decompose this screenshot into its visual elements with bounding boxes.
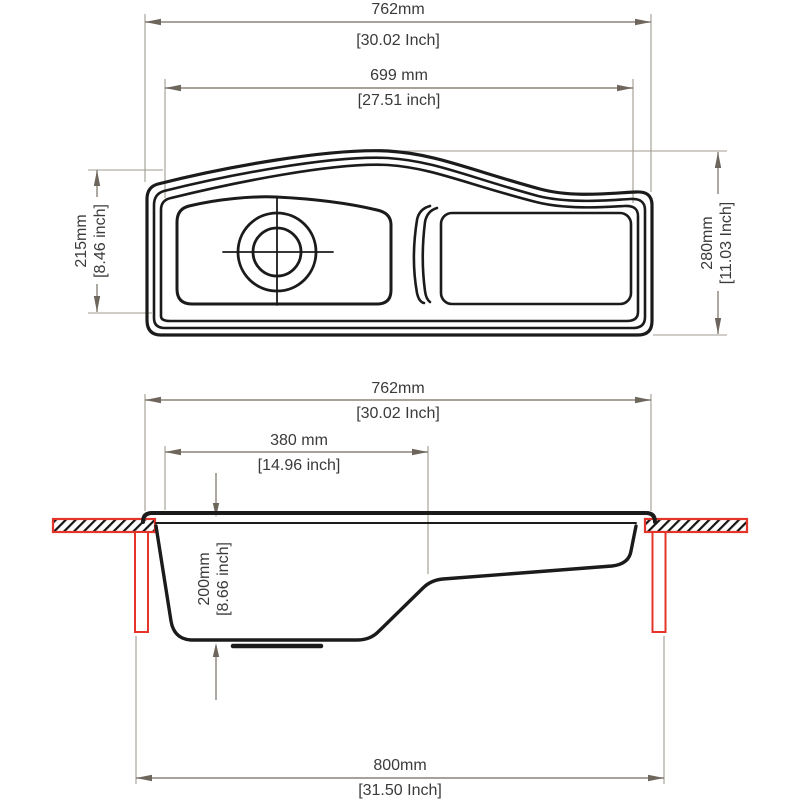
dim-top-width-mm: 762mm: [371, 1, 424, 19]
bowl-divider-2: [423, 208, 437, 302]
extension-lines: [88, 14, 727, 784]
drainboard-outline: [441, 213, 631, 304]
dim-top-width-inch: [30.02 Inch]: [356, 32, 440, 50]
dim-bowl-width-mm: 380 mm: [270, 432, 328, 450]
dim-counter-width-mm: 800mm: [373, 757, 426, 775]
dimension-lines: [97, 22, 718, 778]
counter-left-edge: [135, 532, 148, 632]
dim-inner-width-mm: 699 mm: [370, 67, 428, 85]
counter-left-hatch: [53, 519, 155, 532]
dim-overall-depth-inch: [11.03 Inch]: [717, 202, 736, 284]
sink-top-view: [147, 151, 652, 335]
dim-inner-width-inch: [27.51 inch]: [358, 92, 441, 110]
rim-profile: [143, 513, 655, 522]
counter-right-hatch: [645, 519, 747, 532]
sink-dimension-drawing: 762mm [30.02 Inch] 699 mm [27.51 inch] 2…: [0, 0, 800, 800]
dim-bowl-height-label: 200mm [8.66 inch]: [195, 542, 233, 616]
dim-bowl-height-inch: [8.66 inch]: [214, 542, 233, 616]
dim-bowl-depth-label: 215mm [8.46 inch]: [72, 204, 110, 278]
dim-overall-depth-mm: 280mm: [698, 202, 717, 284]
dim-bowl-depth-mm: 215mm: [72, 204, 91, 278]
dim-counter-width-inch: [31.50 Inch]: [358, 782, 442, 800]
dim-overall-depth-label: 280mm [11.03 Inch]: [698, 202, 736, 284]
dim-side-width-mm: 762mm: [371, 380, 424, 398]
dim-bowl-height-mm: 200mm: [195, 542, 214, 616]
dim-bowl-width-inch: [14.96 inch]: [258, 457, 341, 475]
technical-drawing-svg: [0, 0, 800, 800]
dim-side-width-inch: [30.02 Inch]: [356, 405, 440, 423]
counter-right-edge: [653, 532, 666, 632]
dim-bowl-depth-inch: [8.46 inch]: [91, 204, 110, 278]
